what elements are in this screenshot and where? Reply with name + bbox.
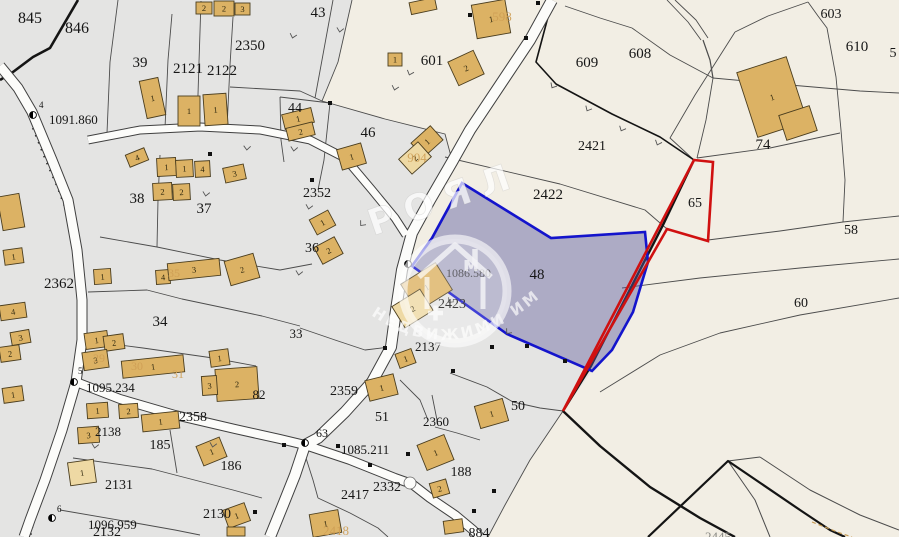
- parcel-label: 2121: [173, 61, 203, 77]
- parcel-label: 610: [846, 39, 869, 55]
- svg-text:6: 6: [57, 504, 62, 514]
- svg-text:1095.234: 1095.234: [86, 380, 135, 395]
- parcel-label: 2352: [303, 186, 331, 201]
- parcel-label: 904: [407, 150, 427, 165]
- parcel-label: 601: [421, 53, 444, 69]
- parcel-label: 74: [756, 137, 772, 153]
- svg-text:4: 4: [39, 100, 44, 110]
- building: 1: [2, 386, 24, 404]
- building: 2: [173, 184, 191, 201]
- building: 2: [119, 403, 139, 418]
- parcel-label: 39: [133, 55, 148, 71]
- svg-text:2: 2: [160, 187, 165, 197]
- svg-text:1: 1: [187, 106, 191, 116]
- svg-text:1: 1: [100, 272, 105, 282]
- building: 4: [0, 302, 27, 320]
- parcel-label: 603: [821, 7, 842, 22]
- svg-text:1: 1: [164, 162, 169, 172]
- building: 2: [214, 1, 234, 16]
- parcel-label: 884: [469, 526, 490, 537]
- building: 4: [195, 161, 211, 178]
- svg-text:1085.211: 1085.211: [341, 442, 389, 457]
- parcel-label: 2332: [373, 480, 401, 495]
- parcel-label: 37: [197, 201, 213, 217]
- parcel-label: 2350: [235, 38, 265, 54]
- svg-text:1086.580: 1086.580: [446, 266, 491, 280]
- svg-text:2: 2: [222, 4, 226, 14]
- parcel-label: 44: [288, 101, 302, 116]
- parcel-label: 2131: [105, 478, 133, 493]
- parcel-label: 36: [305, 241, 319, 256]
- building: 2: [196, 2, 212, 14]
- parcel-label: 5: [890, 46, 897, 61]
- svg-text:2: 2: [126, 406, 131, 416]
- parcel-label: 60: [794, 296, 808, 311]
- building: 1: [87, 402, 109, 418]
- parcel-label: 2137: [415, 339, 442, 354]
- building: 2: [103, 334, 125, 352]
- building: 3: [235, 3, 250, 15]
- parcel-label: 2417: [341, 488, 369, 503]
- svg-text:3: 3: [86, 430, 91, 440]
- parcel-label: 608: [629, 46, 652, 62]
- parcel-label: 2422: [533, 187, 563, 203]
- parcel-label: 185: [150, 438, 171, 453]
- building: 3: [10, 329, 31, 345]
- building: 3: [201, 375, 217, 395]
- building: 1: [203, 93, 228, 126]
- parcel-label: 2445: [705, 529, 731, 537]
- parcel-label: 29: [93, 351, 105, 365]
- parcel-label: 2362: [44, 276, 74, 292]
- svg-text:5: 5: [78, 366, 83, 376]
- parcel-label: 2130: [203, 507, 231, 522]
- cadastral-map: 2231111211214114322121121432143211231123…: [0, 0, 899, 537]
- building: 2: [153, 183, 173, 201]
- svg-text:1: 1: [393, 55, 397, 65]
- svg-text:3: 3: [240, 4, 244, 14]
- building: 2: [0, 345, 21, 363]
- parcel-label: 82: [253, 387, 266, 402]
- parcel-label: 2421: [578, 139, 606, 154]
- building: 1: [3, 248, 24, 265]
- svg-text:3: 3: [207, 381, 212, 391]
- building: 1: [141, 411, 180, 432]
- parcel-label: 845: [18, 10, 42, 27]
- building: 1: [209, 349, 230, 367]
- parcel-label: 50: [511, 399, 525, 414]
- parcel-label: 2423: [438, 297, 466, 312]
- parcel-label: 186: [221, 459, 242, 474]
- building: 1: [176, 160, 194, 178]
- parcel-label: 43: [311, 5, 326, 21]
- building: [443, 519, 464, 535]
- parcel-label: 609: [576, 55, 599, 71]
- svg-text:2: 2: [235, 379, 240, 389]
- svg-text:1: 1: [213, 105, 218, 115]
- parcel-label: 35: [168, 266, 180, 280]
- parcel-label: 58: [844, 223, 858, 238]
- parcel-label: 51: [375, 410, 389, 425]
- parcel-label: 48: [530, 267, 545, 283]
- parcel-label: 188: [451, 465, 472, 480]
- parcel-label: 2122: [207, 63, 237, 79]
- parcel-label: 34: [153, 314, 169, 330]
- parcel-label: 2418: [323, 523, 349, 537]
- svg-text:1: 1: [182, 164, 187, 174]
- svg-text:1: 1: [95, 406, 100, 416]
- building: [227, 527, 245, 536]
- building: 1: [178, 96, 200, 126]
- parcel-label: 846: [65, 20, 89, 37]
- parcel-label: 598: [492, 9, 512, 24]
- parcel-label: 2360: [423, 414, 449, 429]
- svg-text:2: 2: [202, 3, 206, 13]
- parcel-label: 2359: [330, 384, 358, 399]
- parcel-label: 46: [361, 125, 377, 141]
- parcel-label: 31: [172, 367, 184, 381]
- parcel-label: 30: [131, 359, 143, 373]
- parcel-label: 2138: [95, 424, 121, 439]
- building: 1: [388, 53, 402, 66]
- svg-text:2: 2: [179, 187, 184, 197]
- parcel-label: 2358: [179, 410, 207, 425]
- building: 1: [93, 268, 111, 284]
- parcel-label: 38: [130, 191, 145, 207]
- parcel-label: 33: [290, 326, 303, 341]
- svg-text:63: 63: [316, 426, 328, 440]
- map-canvas[interactable]: 2231111211214114322121121432143211231123…: [0, 0, 899, 537]
- building: 1: [68, 459, 97, 485]
- svg-text:1091.860: 1091.860: [49, 112, 98, 127]
- building: 1: [157, 158, 177, 177]
- parcel-label: 2132: [93, 525, 121, 537]
- parcel-label: 65: [688, 196, 702, 211]
